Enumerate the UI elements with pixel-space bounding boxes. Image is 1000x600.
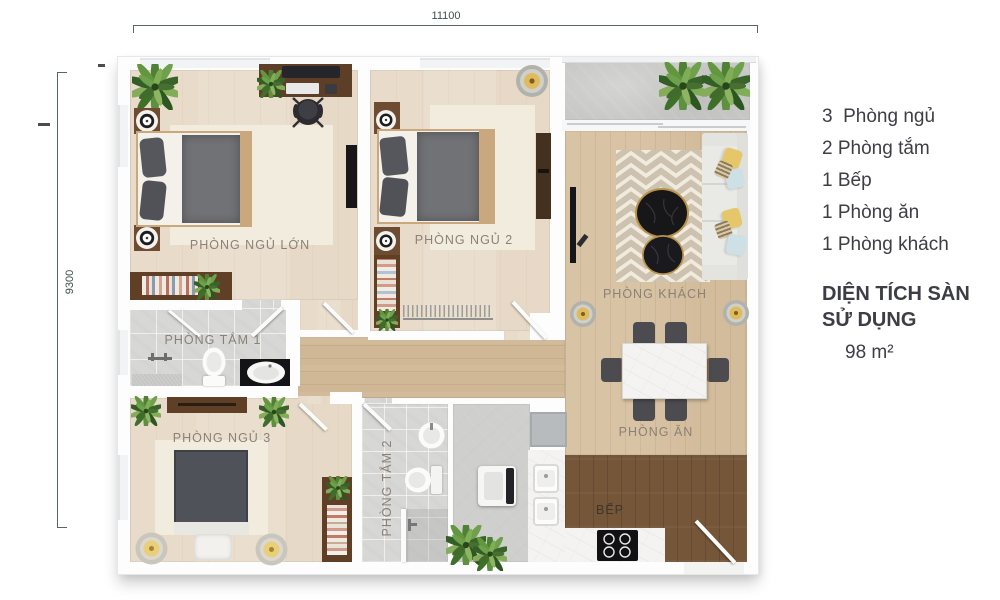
svg-text:9300: 9300	[64, 270, 76, 294]
svg-text:11100: 11100	[432, 10, 461, 22]
